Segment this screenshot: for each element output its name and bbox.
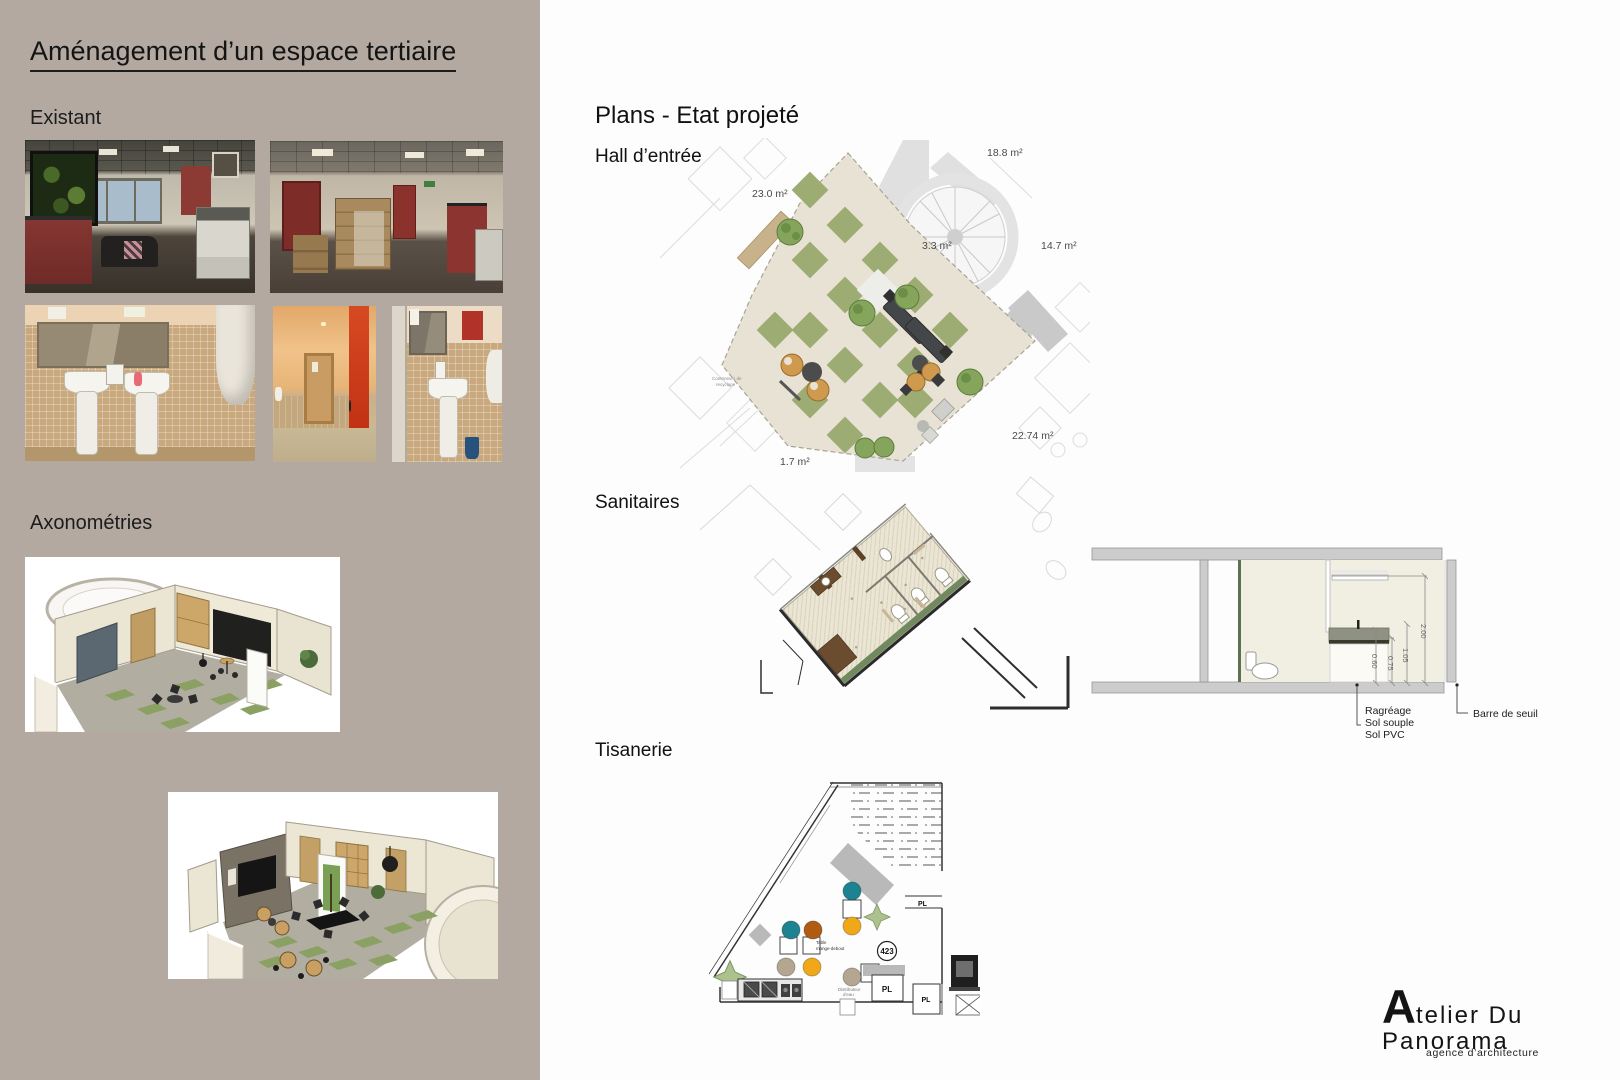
hall-area-17: 1.7 m²	[780, 456, 810, 468]
axonometries-label: Axonométries	[30, 512, 152, 535]
section-callout-seuil: Barre de seuil	[1473, 708, 1538, 720]
photo-existing-hallway	[270, 141, 503, 293]
sanitaires-plan	[690, 470, 1070, 720]
tisanerie-pl-label-3: PL	[918, 901, 928, 908]
section-dim-075: 0.75	[1386, 656, 1395, 671]
agency-name: Atelier Du Panorama	[1382, 983, 1617, 1054]
hall-area-23: 23.0 m²	[752, 188, 788, 200]
axonometric-view-2	[168, 792, 498, 979]
board-title: Aménagement d’un espace tertiaire	[30, 36, 456, 72]
axonometric-view-1	[25, 557, 340, 732]
tisanerie-room-number: 423	[880, 947, 894, 956]
presentation-board: Aménagement d’un espace tertiaire Exista…	[0, 0, 1620, 1080]
hall-recycling-note-line1: Conteneurs de	[712, 376, 742, 381]
tisanerie-pl-label-2: PL	[922, 997, 932, 1004]
hall-plan: 23.0 m² 18.8 m² 3.3 m² 14.7 m² 22.74 m² …	[660, 138, 1090, 478]
existant-label: Existant	[30, 107, 101, 130]
sanitaires-label: Sanitaires	[595, 492, 680, 514]
tisanerie-table-label-line2: mange-debout	[816, 946, 845, 951]
section-callout-ragreage: Ragréage	[1365, 705, 1411, 717]
section-callout-solsouple: Sol souple	[1365, 717, 1414, 729]
tisanerie-label: Tisanerie	[595, 740, 672, 762]
photo-existing-corridor	[273, 306, 376, 462]
tisanerie-water-label-line2: d’eau	[843, 992, 854, 997]
agency-logo: Atelier Du Panorama agence d’architectur…	[1382, 983, 1617, 1059]
section-callout-solpvc: Sol PVC	[1365, 729, 1405, 741]
bathroom-section-drawing: 0.60 0.75 1.05 2.00 Ragréage Sol souple …	[1080, 520, 1540, 750]
tisanerie-table-label-line1: Table	[816, 940, 827, 945]
plans-heading: Plans - Etat projeté	[595, 102, 799, 130]
section-dim-105: 1.05	[1401, 648, 1410, 663]
hall-recycling-note-line2: recyclage	[716, 382, 736, 387]
section-dim-060: 0.60	[1370, 654, 1379, 669]
photo-existing-bathroom-1	[25, 305, 255, 461]
hall-area-33: 3.3 m²	[922, 240, 952, 252]
left-panel: Aménagement d’un espace tertiaire Exista…	[0, 0, 540, 1080]
tisanerie-plan: Table mange-debout Distributeur d’eau 42…	[680, 765, 980, 1017]
hall-area-188: 18.8 m²	[987, 147, 1023, 159]
agency-subtitle: agence d’architecture	[1426, 1047, 1617, 1059]
section-dim-200: 2.00	[1419, 624, 1428, 639]
tisanerie-pl-label-1: PL	[882, 985, 892, 994]
hall-area-2274: 22.74 m²	[1012, 430, 1054, 442]
photo-existing-bathroom-2	[392, 306, 502, 462]
photo-existing-openspace-1	[25, 140, 255, 293]
hall-area-147: 14.7 m²	[1041, 240, 1077, 252]
